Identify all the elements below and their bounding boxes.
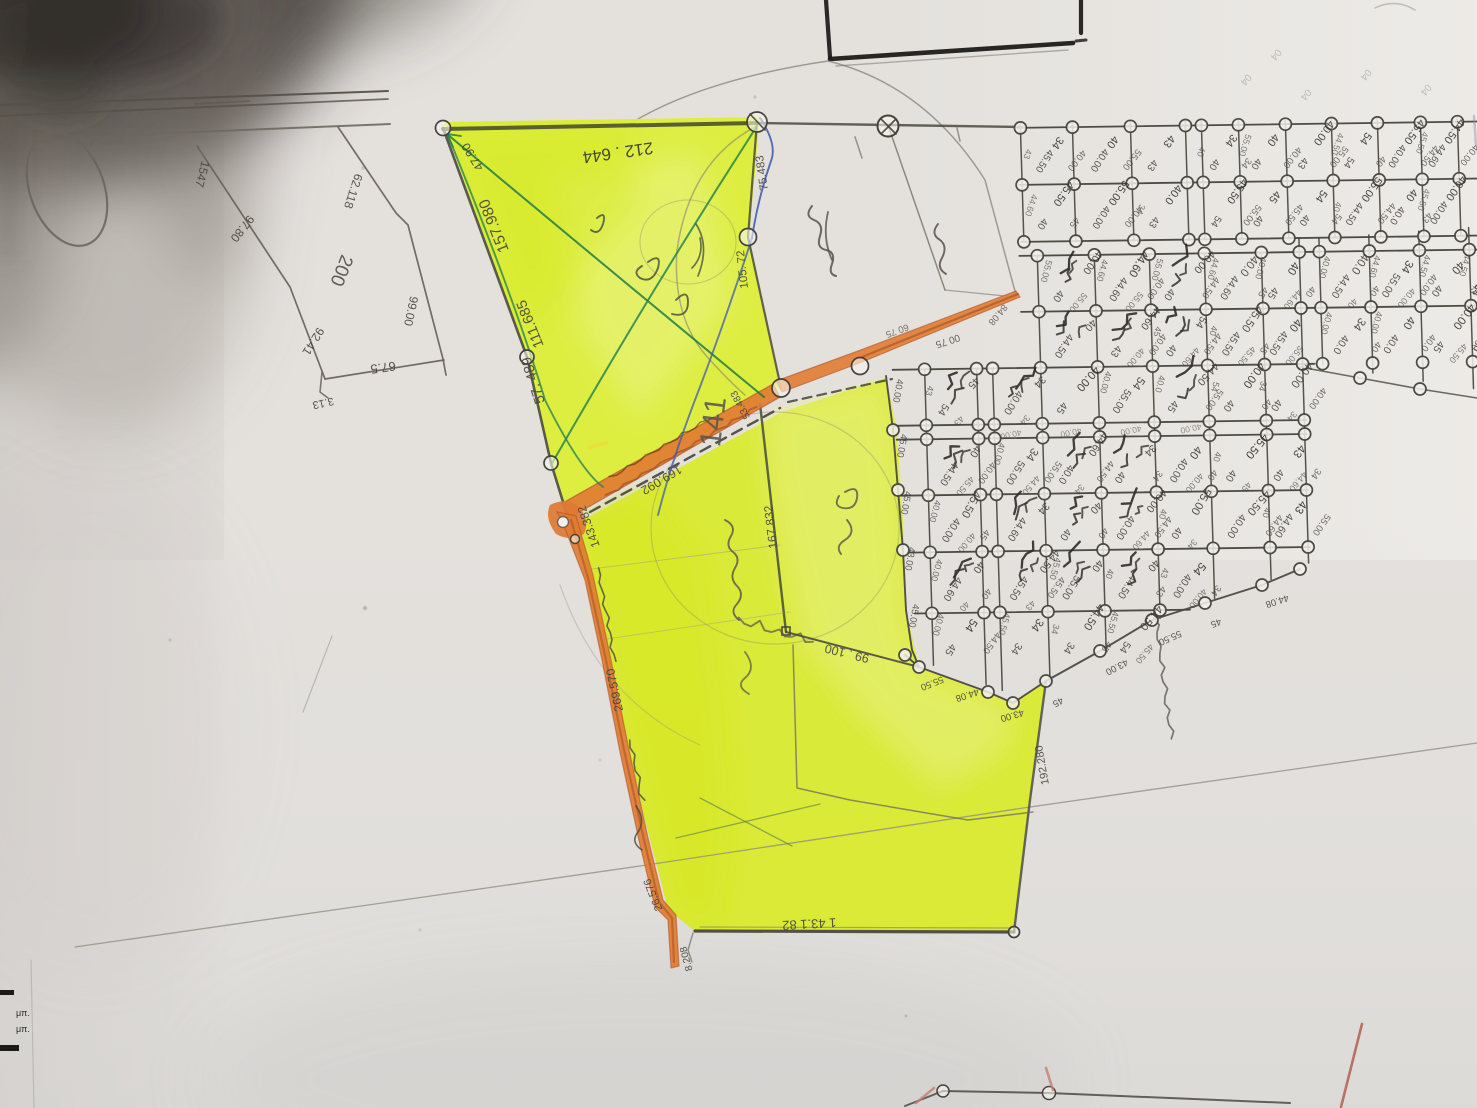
svg-text:μπ.: μπ. <box>16 1024 30 1034</box>
svg-text:μπ.: μπ. <box>16 1008 30 1018</box>
svg-text:141: 141 <box>694 395 733 449</box>
svg-text:1 43.1 82: 1 43.1 82 <box>782 915 837 933</box>
